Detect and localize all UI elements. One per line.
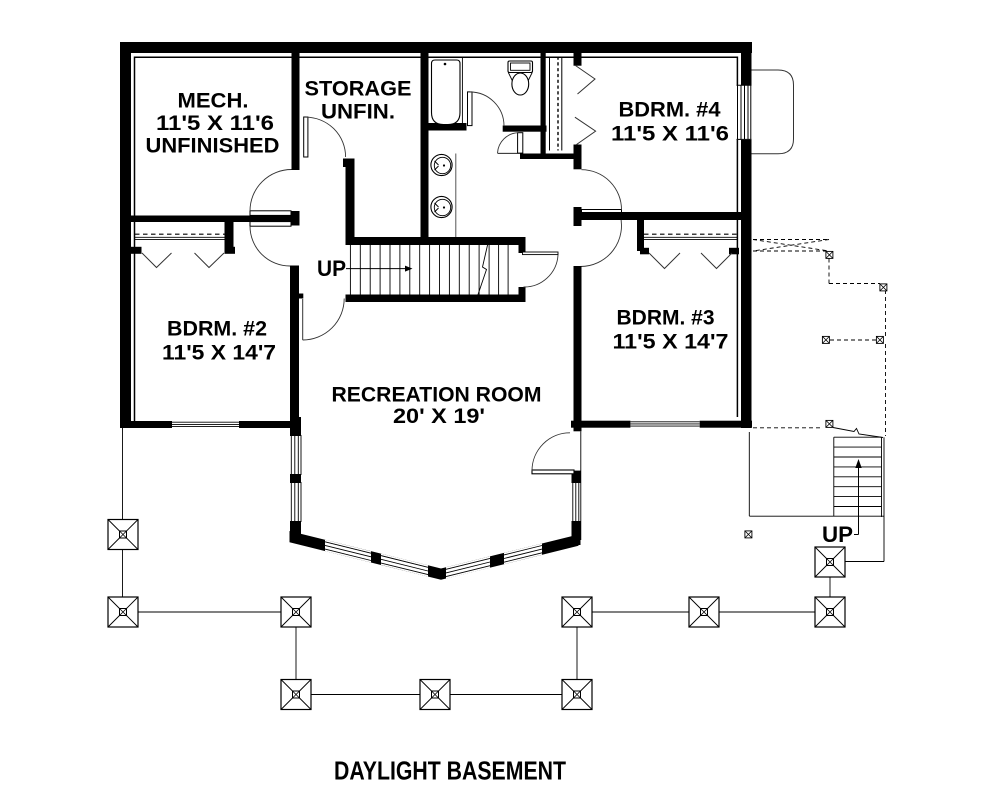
svg-text:11'5 X 14'7: 11'5 X 14'7 (162, 341, 276, 365)
svg-text:11'5 X 11'6: 11'5 X 11'6 (156, 111, 274, 135)
svg-text:UNFIN.: UNFIN. (321, 100, 395, 124)
svg-text:BDRM. #2: BDRM. #2 (167, 317, 267, 341)
svg-text:STORAGE: STORAGE (305, 77, 412, 101)
svg-text:RECREATION ROOM: RECREATION ROOM (332, 383, 542, 407)
svg-text:DAYLIGHT BASEMENT: DAYLIGHT BASEMENT (334, 756, 566, 786)
svg-text:11'5 X 14'7: 11'5 X 14'7 (613, 330, 729, 354)
svg-text:BDRM. #4: BDRM. #4 (619, 98, 721, 122)
svg-text:11'5 X 11'6: 11'5 X 11'6 (611, 122, 729, 146)
svg-text:UP: UP (822, 522, 853, 547)
svg-text:20' X 19': 20' X 19' (393, 404, 485, 428)
svg-text:MECH.: MECH. (178, 89, 249, 113)
svg-text:UP: UP (317, 256, 346, 281)
svg-text:BDRM. #3: BDRM. #3 (617, 306, 715, 330)
svg-text:UNFINISHED: UNFINISHED (146, 134, 280, 158)
